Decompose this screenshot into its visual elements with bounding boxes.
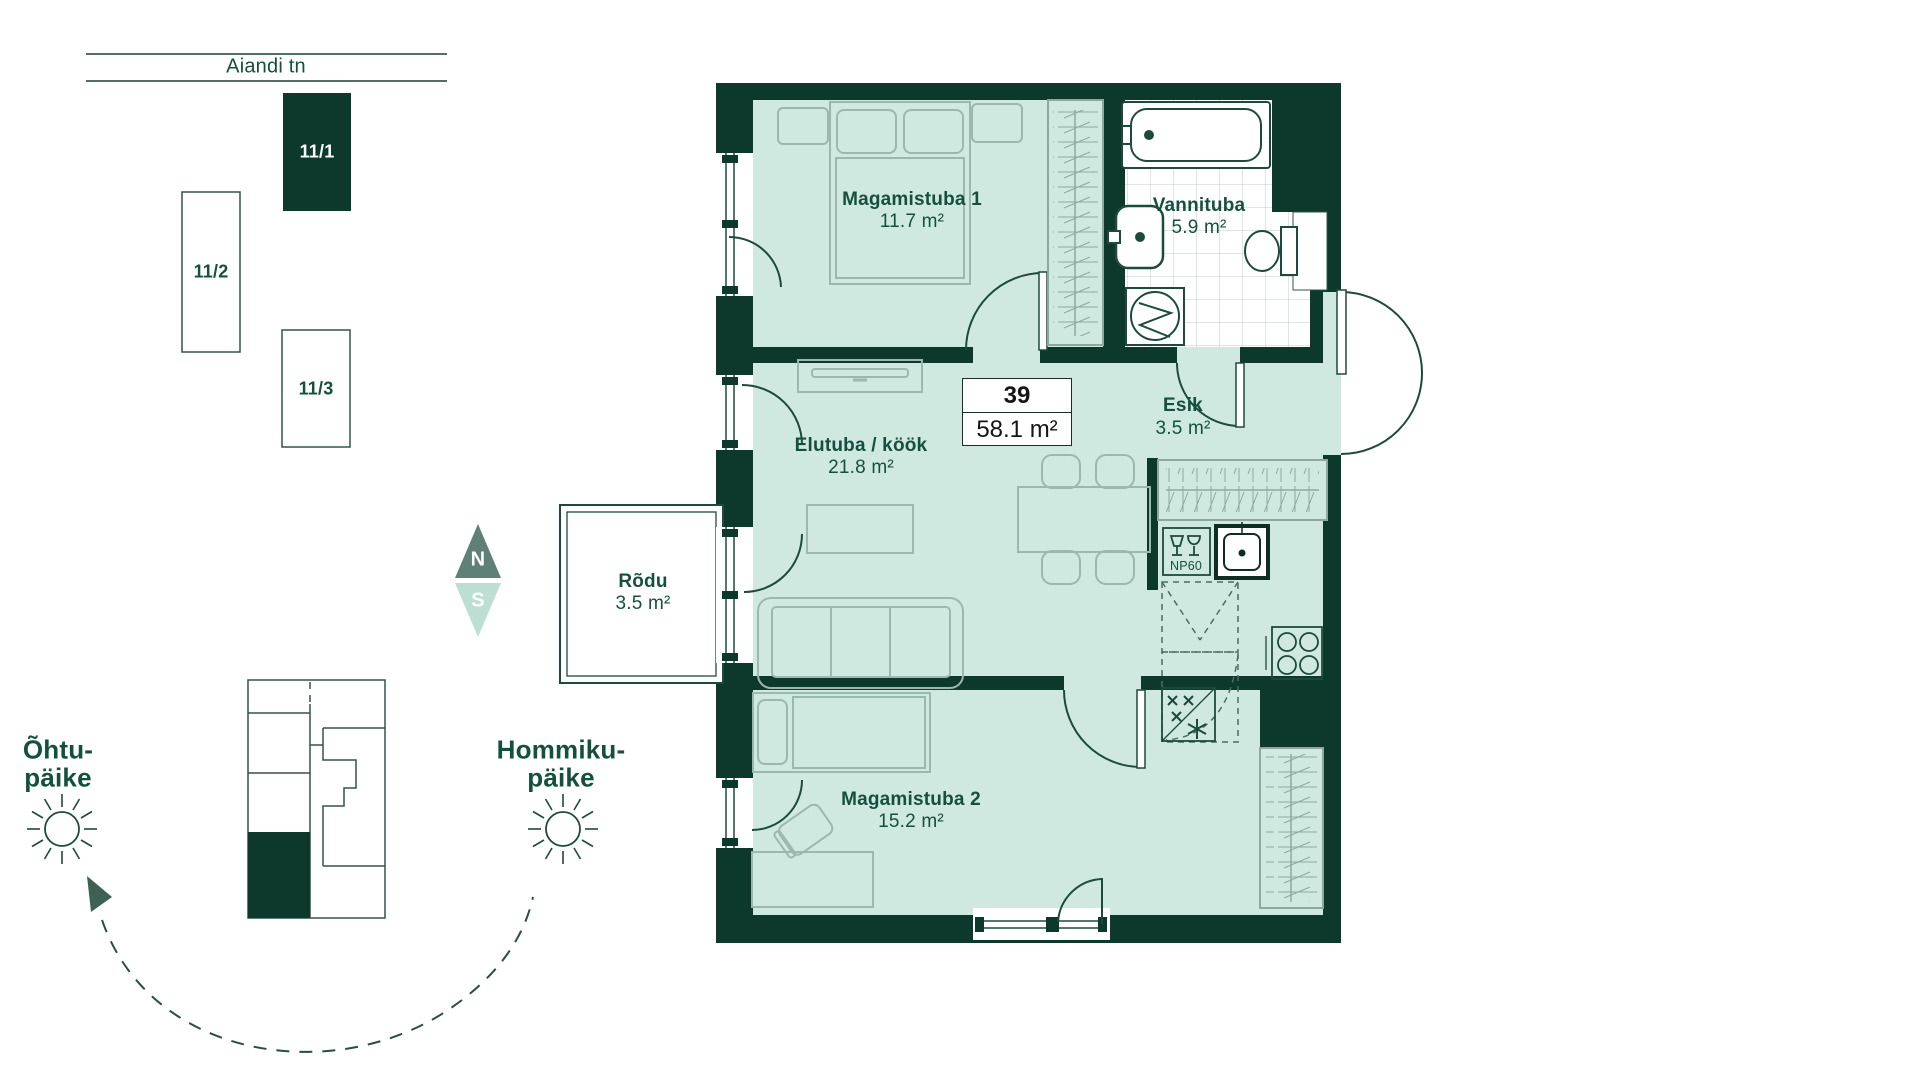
compass-north-label: N <box>471 549 486 572</box>
floorplan-page: Aiandi tn 11/1 11/2 11/3 N S Õhtu- päike… <box>0 0 1920 1080</box>
morning-sun-icon <box>528 794 598 864</box>
building-label-11-2: 11/2 <box>194 262 229 283</box>
dishwasher-label: NP60 <box>1170 559 1202 573</box>
room-area-bedroom2: 15.2 m² <box>878 811 944 833</box>
washing-machine <box>1126 288 1184 345</box>
bathtub <box>1122 102 1270 168</box>
apartment-number: 39 <box>963 379 1071 413</box>
room-label-hallway: Esik <box>1163 395 1203 417</box>
morning-sun-label2: päike <box>527 764 595 791</box>
room-label-bedroom1: Magamistuba 1 <box>842 189 982 211</box>
site-footprint-highlight <box>248 832 310 918</box>
room-label-bathroom: Vannituba <box>1153 195 1246 217</box>
room-label-bedroom2: Magamistuba 2 <box>841 789 981 811</box>
apartment-plan <box>560 83 1422 943</box>
evening-sun-icon <box>27 794 97 864</box>
shaft-wall <box>1272 83 1341 212</box>
building-label-11-3: 11/3 <box>299 379 334 400</box>
apartment-info-box: 39 58.1 m² <box>962 378 1072 446</box>
window-bottom-wall <box>973 908 1110 940</box>
kitchen-sink <box>1216 522 1268 578</box>
room-area-bedroom1: 11.7 m² <box>880 211 944 233</box>
sun-path-arrow <box>87 876 112 912</box>
wardrobe-bedroom1 <box>1048 100 1103 345</box>
room-area-balcony: 3.5 m² <box>615 593 670 615</box>
building-label-11-1: 11/1 <box>300 142 335 163</box>
apartment-total-area: 58.1 m² <box>963 413 1071 446</box>
evening-sun-label: Õhtu- <box>23 736 93 763</box>
room-label-living: Elutuba / köök <box>795 435 928 457</box>
evening-sun-label2: päike <box>24 764 92 791</box>
room-area-hallway: 3.5 m² <box>1155 418 1210 440</box>
room-label-balcony: Rõdu <box>618 571 667 593</box>
morning-sun-label: Hommiku- <box>497 736 626 763</box>
toilet <box>1245 227 1297 275</box>
street-label: Aiandi tn <box>226 56 306 79</box>
hallway-closet <box>1158 460 1327 520</box>
room-area-living: 21.8 m² <box>828 457 894 479</box>
floorplan-drawing <box>0 0 1920 1080</box>
balcony-door <box>716 527 753 663</box>
compass-icon <box>455 524 501 637</box>
site-footprint <box>248 680 385 918</box>
room-area-bathroom: 5.9 m² <box>1171 217 1226 239</box>
wardrobe-bedroom2 <box>1260 748 1323 908</box>
compass-south-label: S <box>471 590 485 613</box>
